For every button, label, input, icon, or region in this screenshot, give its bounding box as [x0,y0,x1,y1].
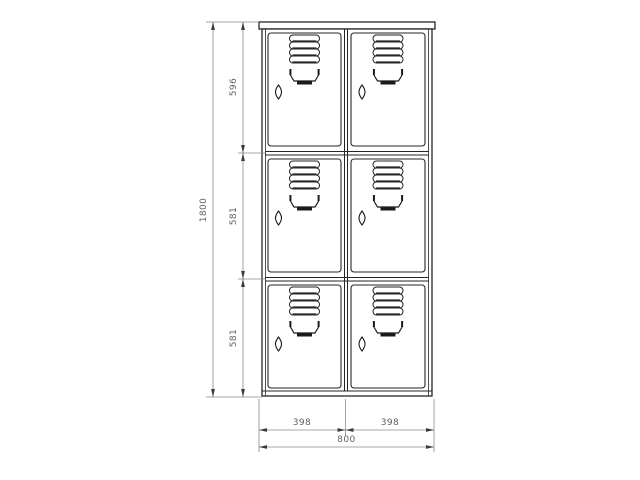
drawing-canvas: 1800 596 581 581 398 398 [0,0,640,480]
cabinet-top-cap [259,22,435,29]
dim-label-overall-width: 800 [337,435,355,445]
dim-compartment-chain: 596 581 581 [229,22,245,397]
vent-louvers-icon [373,35,403,63]
dim-overall-height: 1800 [199,22,215,397]
locker-elevation-drawing: 1800 596 581 581 398 398 [0,0,640,480]
vent-louvers-icon [373,161,403,189]
vent-louvers-icon [290,35,320,63]
vent-louvers-icon [373,287,403,315]
door-row1-right [351,33,425,146]
dim-label-compartment-2: 581 [229,207,239,225]
door-row2-left [268,159,341,272]
dim-label-width-left: 398 [293,418,311,428]
vent-louvers-icon [290,161,320,189]
dim-label-compartment-1: 596 [229,78,239,96]
dim-label-overall-height: 1800 [199,198,209,223]
door-row3-right [351,285,425,388]
dim-label-width-right: 398 [381,418,399,428]
door-row3-left [268,285,341,388]
dim-label-compartment-3: 581 [229,329,239,347]
dim-overall-width: 800 [259,435,434,449]
door-row2-right [351,159,425,272]
door-row1-left [268,33,341,146]
dim-column-widths: 398 398 [259,418,434,432]
locker-cabinet [259,22,435,396]
vent-louvers-icon [290,287,320,315]
